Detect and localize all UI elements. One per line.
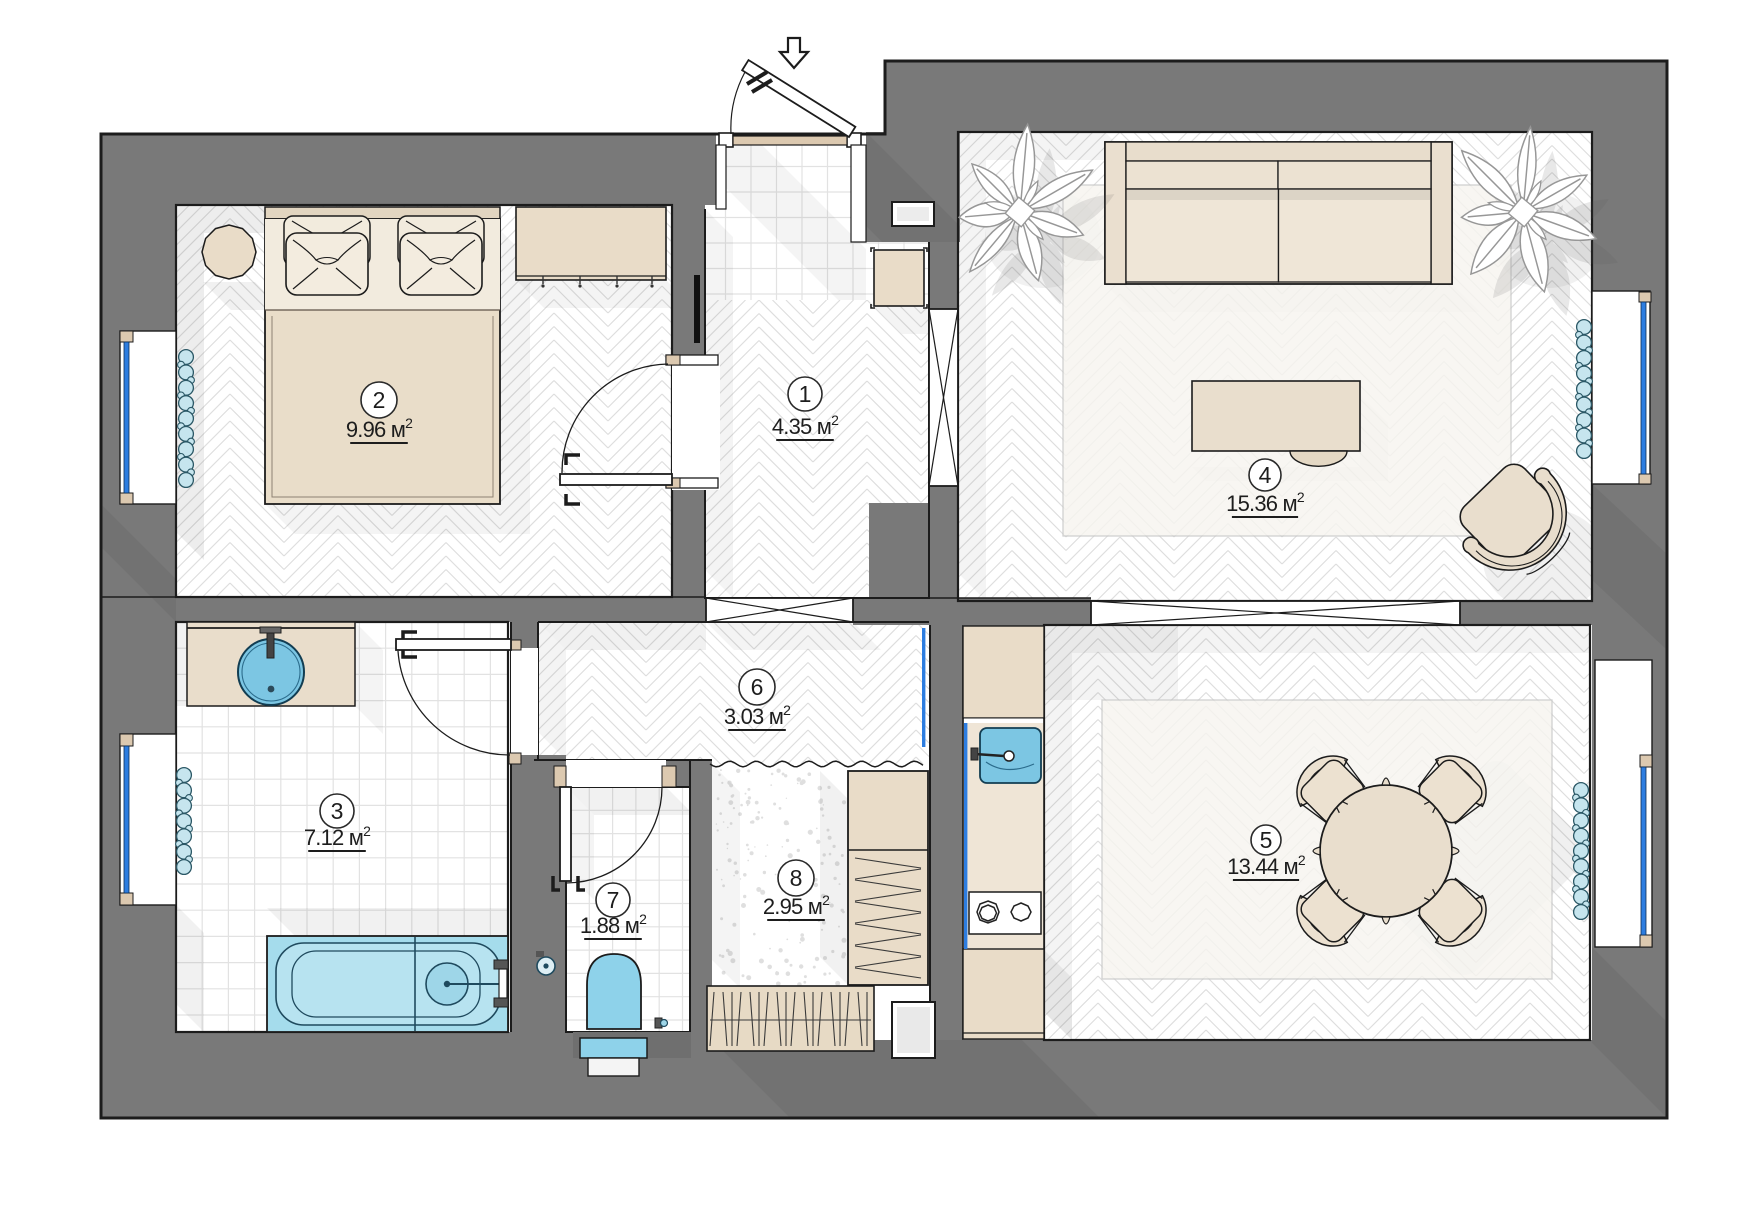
svg-text:13.44 м2: 13.44 м2 <box>1227 852 1306 879</box>
svg-text:4: 4 <box>1259 462 1272 488</box>
svg-text:2: 2 <box>373 387 386 413</box>
svg-text:3: 3 <box>331 798 344 824</box>
svg-text:15.36 м2: 15.36 м2 <box>1226 489 1305 516</box>
svg-text:3.03 м2: 3.03 м2 <box>724 702 791 729</box>
svg-text:1.88 м2: 1.88 м2 <box>580 911 647 938</box>
svg-text:7.12 м2: 7.12 м2 <box>304 823 371 850</box>
svg-text:2.95 м2: 2.95 м2 <box>763 892 830 919</box>
svg-text:8: 8 <box>790 865 803 891</box>
svg-text:1: 1 <box>799 381 812 407</box>
svg-text:7: 7 <box>607 887 620 913</box>
svg-text:6: 6 <box>751 674 764 700</box>
svg-text:9.96 м2: 9.96 м2 <box>346 415 413 442</box>
svg-text:4.35 м2: 4.35 м2 <box>772 412 839 439</box>
svg-text:5: 5 <box>1260 827 1273 853</box>
